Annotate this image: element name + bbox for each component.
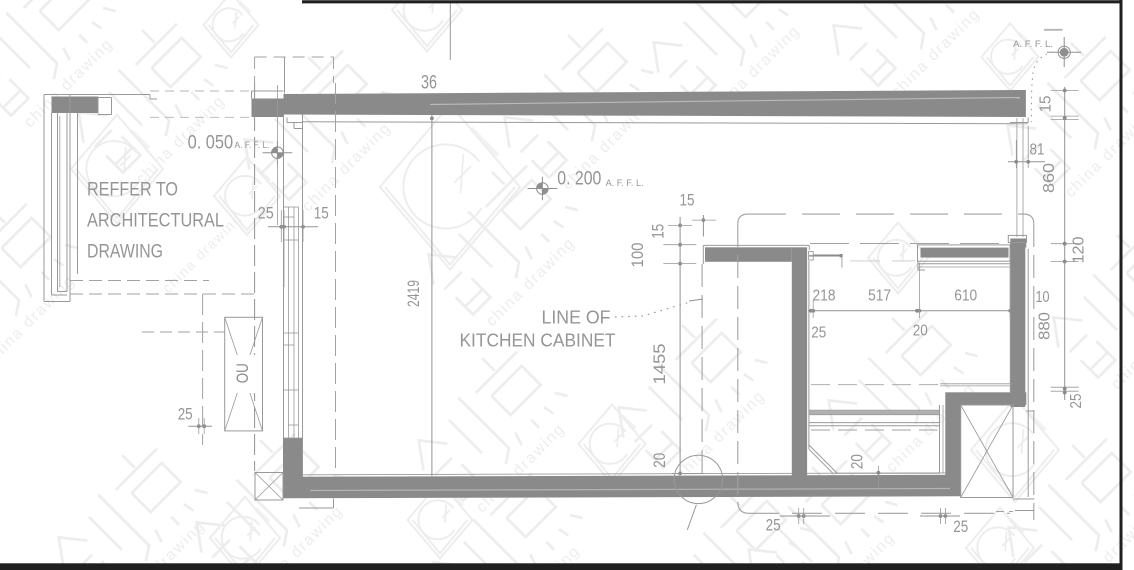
svg-text:A. F. F. L.: A. F. F. L.	[235, 140, 270, 151]
svg-text:218: 218	[813, 288, 836, 305]
svg-text:36: 36	[421, 72, 437, 94]
svg-text:15: 15	[1038, 95, 1055, 112]
svg-text:15: 15	[649, 224, 668, 239]
svg-text:25: 25	[258, 203, 274, 222]
svg-text:A. F. F. L.: A. F. F. L.	[606, 178, 644, 189]
svg-text:DRAWING: DRAWING	[87, 242, 163, 263]
svg-text:100: 100	[628, 243, 647, 268]
svg-text:10: 10	[1036, 289, 1050, 306]
svg-text:15: 15	[680, 191, 695, 210]
svg-text:880: 880	[1037, 312, 1054, 340]
svg-text:860: 860	[1041, 163, 1058, 193]
svg-text:25: 25	[1068, 393, 1085, 408]
svg-text:OU: OU	[233, 363, 252, 383]
svg-text:20: 20	[849, 454, 867, 469]
svg-text:20: 20	[651, 453, 669, 468]
svg-text:25: 25	[766, 517, 781, 535]
svg-text:25: 25	[178, 406, 193, 424]
svg-text:A. F. F. L.: A. F. F. L.	[1013, 39, 1053, 50]
svg-text:25: 25	[953, 518, 968, 536]
svg-text:15: 15	[314, 203, 329, 222]
svg-text:81: 81	[1030, 141, 1045, 158]
svg-text:0. 050: 0. 050	[188, 133, 234, 154]
svg-text:120: 120	[1071, 236, 1088, 263]
svg-text:610: 610	[954, 288, 977, 305]
svg-text:20: 20	[913, 322, 928, 339]
svg-text:ARCHITECTURAL: ARCHITECTURAL	[87, 211, 224, 232]
svg-text:REFFER TO: REFFER TO	[87, 180, 178, 201]
svg-text:1455: 1455	[651, 344, 669, 385]
svg-text:0. 200: 0. 200	[557, 169, 601, 190]
svg-text:2419: 2419	[405, 280, 423, 307]
svg-text:25: 25	[811, 324, 826, 341]
svg-text:KITCHEN CABINET: KITCHEN CABINET	[460, 331, 616, 351]
svg-text:517: 517	[868, 288, 891, 305]
svg-text:LINE OF: LINE OF	[542, 307, 611, 327]
